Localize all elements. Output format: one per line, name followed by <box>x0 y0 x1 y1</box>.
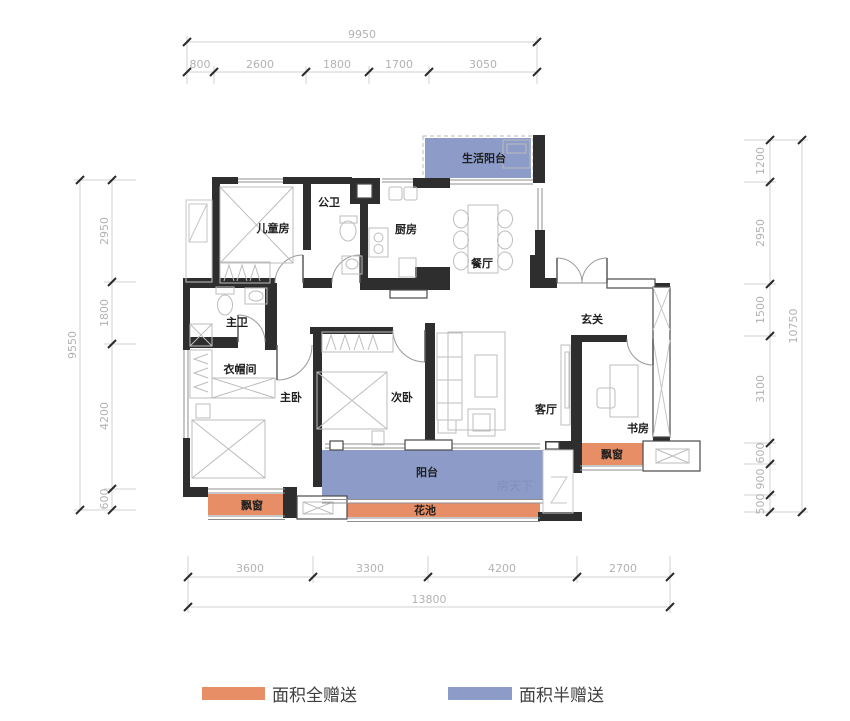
master-bed-window <box>182 350 190 438</box>
dimensions-left: 9550 2950 1800 4200 600 <box>66 176 136 514</box>
room-label-study: 书房 <box>627 421 649 435</box>
dim-right-seg-6: 500 <box>754 494 767 515</box>
public-bath-door-arc <box>332 255 360 283</box>
coffee-table <box>475 355 497 397</box>
second-bed-door-arc <box>393 330 425 362</box>
dim-left-seg-1: 1800 <box>98 299 111 327</box>
room-label-flower-bed: 花池 <box>414 503 436 517</box>
dim-top-seg-3: 1700 <box>385 58 413 71</box>
dim-right-seg-1: 2950 <box>754 219 767 247</box>
study-desk <box>610 365 638 417</box>
legend-swatch-full-gift <box>202 687 265 700</box>
nightstand <box>196 404 210 418</box>
dim-bottom-seg-0: 3600 <box>236 562 264 575</box>
life-balcony-window <box>450 178 533 186</box>
kitchen-window <box>382 177 413 184</box>
room-label-life-balcony: 生活阳台 <box>462 151 506 165</box>
dim-top-seg-0: 800 <box>190 58 211 71</box>
dim-right-seg-5: 900 <box>754 469 767 490</box>
room-label-master-bed: 主卧 <box>280 390 302 404</box>
dimensions-top: 9950 800 2600 1800 1700 3050 <box>183 28 541 84</box>
balcony-side-window <box>543 450 573 513</box>
legend-label-full-gift: 面积全赠送 <box>272 686 357 706</box>
nightstand <box>372 431 384 445</box>
floorplan-page: 儿童房 公卫 厨房 餐厅 生活阳台 玄关 主卫 衣帽间 主卧 次卧 客厅 书房 … <box>0 0 850 721</box>
flower-bed-zone <box>347 503 540 517</box>
room-label-kitchen: 厨房 <box>395 222 417 236</box>
master-bed-door-arc <box>277 345 312 380</box>
floorplan-canvas: 儿童房 公卫 厨房 餐厅 生活阳台 玄关 主卫 衣帽间 主卧 次卧 客厅 书房 … <box>0 0 850 721</box>
room-label-living: 客厅 <box>534 402 557 416</box>
side-table <box>438 420 456 433</box>
dim-right-seg-0: 1200 <box>754 147 767 175</box>
legend-swatch-half-gift <box>448 687 512 700</box>
watermark: 房天下 <box>497 478 533 493</box>
dim-bottom-seg-2: 4200 <box>488 562 516 575</box>
dim-top-seg-2: 1800 <box>323 58 351 71</box>
cloakroom-closet <box>190 350 212 398</box>
room-label-children: 儿童房 <box>256 221 290 235</box>
dining-window <box>536 188 545 230</box>
study-chair <box>597 388 615 408</box>
master-bath-toilet <box>216 287 234 294</box>
dim-left-seg-0: 2950 <box>98 217 111 245</box>
room-label-public-bath: 公卫 <box>318 196 340 209</box>
living-rug <box>448 332 505 430</box>
dim-bottom-seg-1: 3300 <box>356 562 384 575</box>
room-label-entry: 玄关 <box>581 312 603 326</box>
dim-right-seg-3: 3100 <box>754 375 767 403</box>
fridge <box>399 258 416 277</box>
sliding-door-panel <box>330 441 343 450</box>
entry-top-wall <box>607 279 655 288</box>
public-bath-toilet <box>340 216 357 223</box>
dim-left-total: 9550 <box>66 331 79 359</box>
room-label-master-bath: 主卫 <box>226 315 248 329</box>
room-label-bay-left: 飘窗 <box>241 498 263 512</box>
furniture <box>190 140 638 478</box>
kitchen-sink <box>389 187 402 200</box>
room-label-balcony: 阳台 <box>416 465 438 479</box>
dim-right-seg-2: 1500 <box>754 296 767 324</box>
dimensions-right: 1200 2950 1500 3100 600 900 500 10750 <box>744 136 808 516</box>
dim-left-seg-3: 600 <box>98 489 111 510</box>
sofa <box>437 333 462 420</box>
dim-right-total: 10750 <box>787 309 800 344</box>
dim-left-seg-2: 4200 <box>98 402 111 430</box>
armchair <box>468 409 495 436</box>
master-bath-sink <box>245 288 267 304</box>
legend: 面积全赠送 面积半赠送 <box>202 686 604 706</box>
dim-top-total: 9950 <box>348 28 376 41</box>
room-label-second-bed: 次卧 <box>391 390 413 404</box>
second-bed-closet <box>322 332 393 352</box>
children-room-window <box>238 177 283 184</box>
tv <box>565 352 569 408</box>
dim-bottom-total: 13800 <box>412 593 447 606</box>
room-label-cloakroom: 衣帽间 <box>224 362 257 376</box>
dim-top-seg-1: 2600 <box>246 58 274 71</box>
legend-label-half-gift: 面积半赠送 <box>519 686 604 706</box>
entry-door-arc <box>557 258 582 283</box>
dim-right-seg-4: 600 <box>754 443 767 464</box>
sliding-door-panel <box>405 440 452 450</box>
study-door-arc <box>627 339 653 365</box>
dimensions-bottom: 3600 3300 4200 2700 13800 <box>184 556 674 613</box>
room-label-bay-right: 飘窗 <box>601 447 623 461</box>
room-label-dining: 餐厅 <box>470 256 493 270</box>
dim-bottom-seg-3: 2700 <box>609 562 637 575</box>
dim-top-seg-4: 3050 <box>469 58 497 71</box>
